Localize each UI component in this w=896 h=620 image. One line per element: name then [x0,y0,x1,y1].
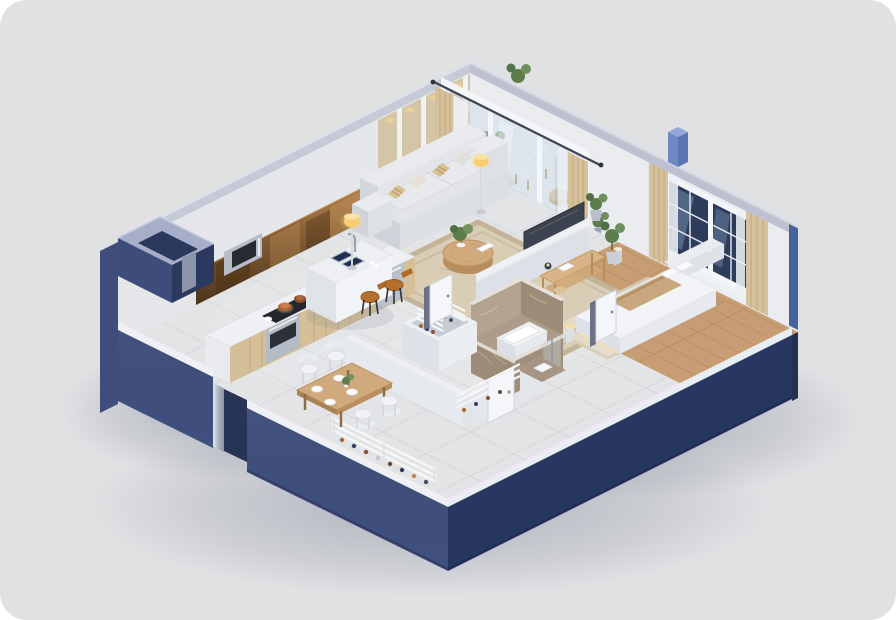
plinth-left-edge [100,242,118,413]
chrome-column [213,383,224,452]
roof-pillar [668,127,688,167]
floorplan-card [0,0,896,620]
